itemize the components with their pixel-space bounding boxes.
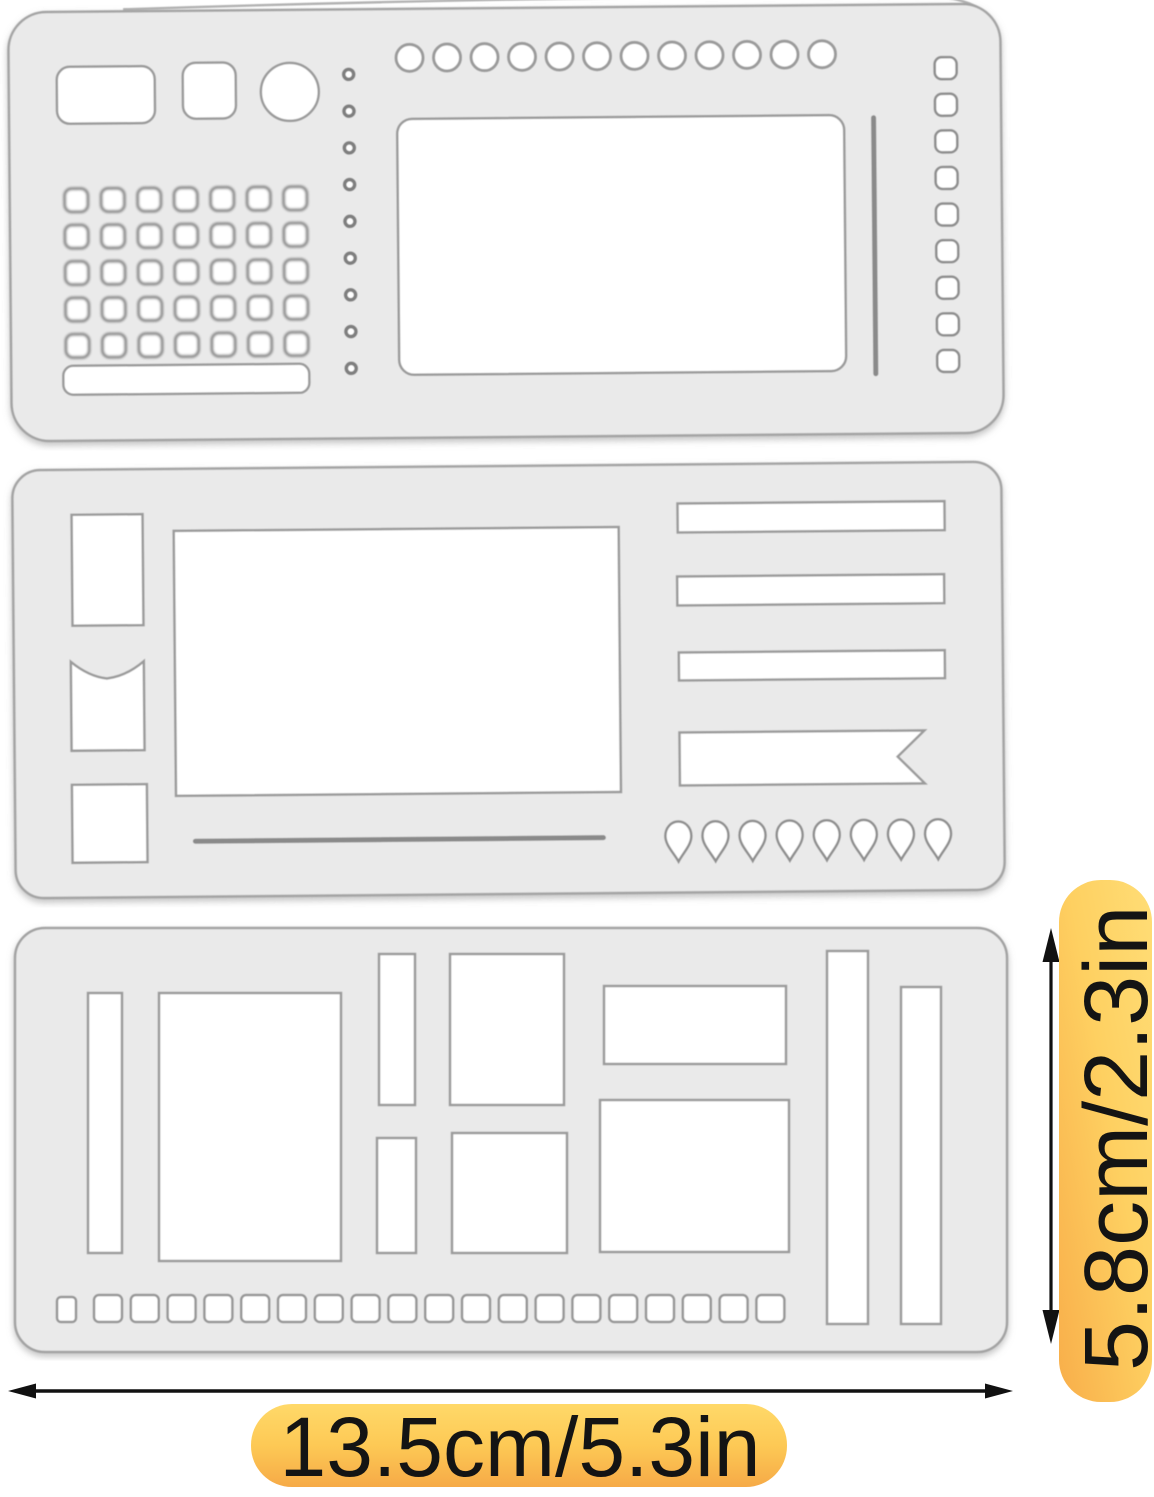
svg-text:13.5cm/5.3in: 13.5cm/5.3in — [280, 1400, 761, 1494]
svg-text:5.8cm/2.3in: 5.8cm/2.3in — [1067, 906, 1154, 1371]
